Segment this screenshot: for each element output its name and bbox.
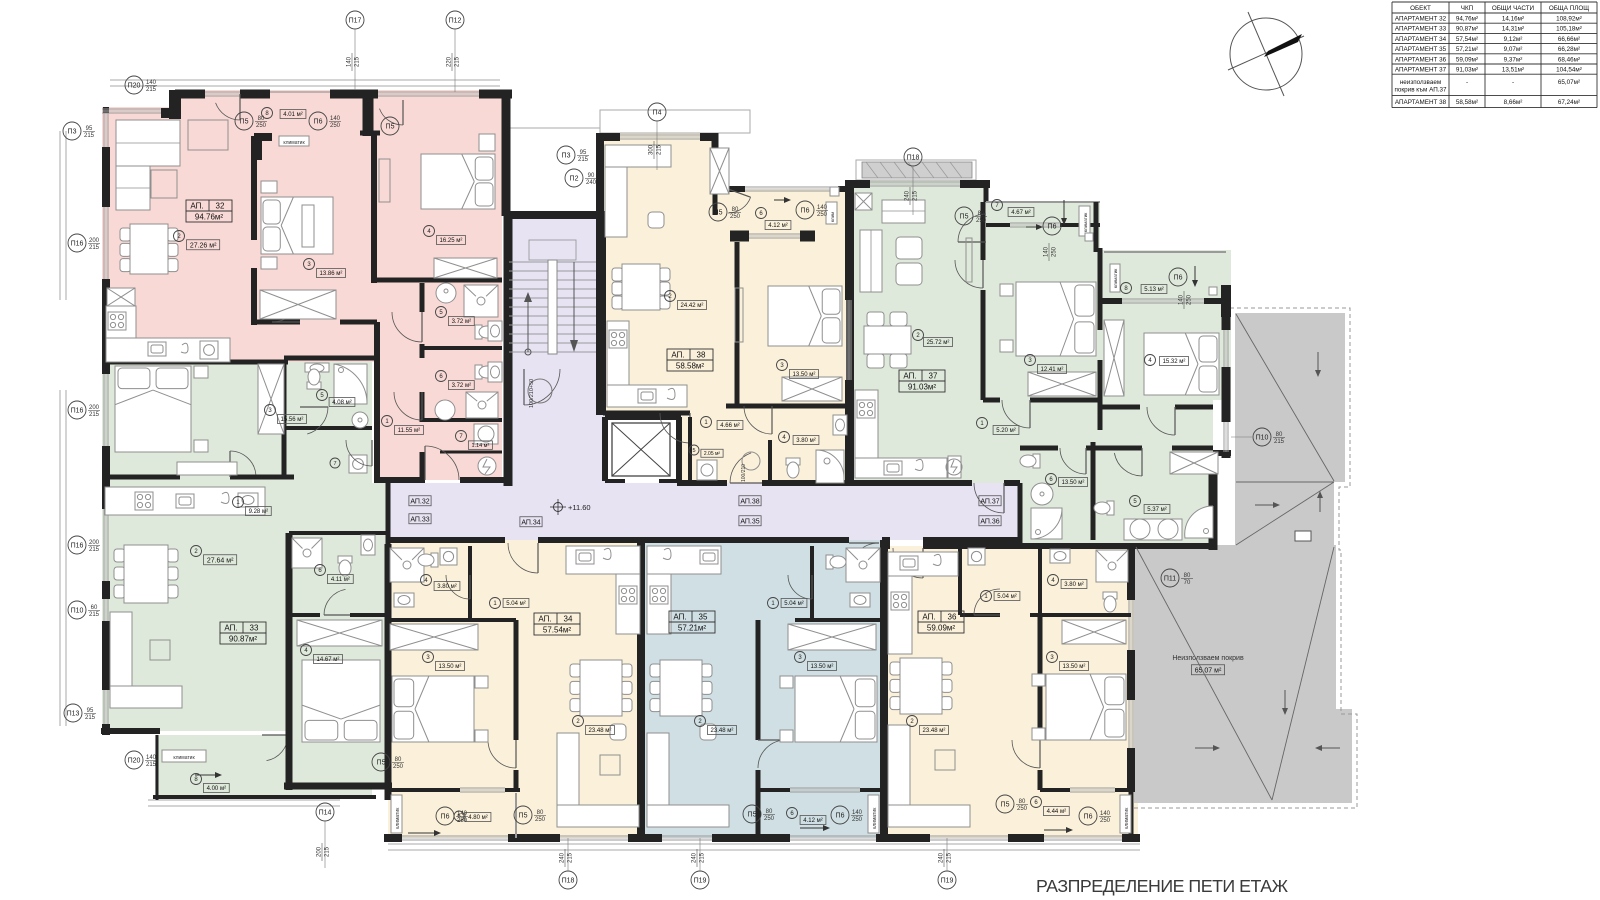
svg-text:АПАРТАМЕНТ 33: АПАРТАМЕНТ 33: [1395, 26, 1447, 33]
svg-text:П16: П16: [71, 241, 84, 248]
svg-text:П6: П6: [441, 814, 450, 821]
svg-text:33: 33: [250, 624, 259, 633]
svg-text:ОБЕКТ: ОБЕКТ: [1410, 5, 1431, 12]
svg-text:АП.37: АП.37: [980, 498, 999, 505]
svg-text:П6: П6: [1174, 275, 1183, 282]
svg-text:АП.: АП.: [903, 372, 916, 381]
svg-text:2.05 м²: 2.05 м²: [704, 451, 721, 457]
svg-text:27.64 м²: 27.64 м²: [207, 557, 234, 564]
svg-text:5.04 м²: 5.04 м²: [997, 594, 1016, 600]
svg-text:200: 200: [89, 405, 100, 411]
svg-text:4.12 м²: 4.12 м²: [803, 818, 822, 824]
svg-text:3.80 м²: 3.80 м²: [796, 438, 815, 444]
svg-text:4.44 м²: 4.44 м²: [1047, 809, 1066, 815]
svg-text:климатик: климатик: [283, 140, 305, 146]
svg-text:215: 215: [568, 852, 574, 863]
svg-text:140: 140: [146, 80, 157, 86]
svg-text:П10: П10: [71, 608, 84, 615]
svg-text:240: 240: [939, 852, 945, 863]
svg-text:П5: П5: [240, 119, 249, 126]
svg-text:П5: П5: [377, 760, 386, 767]
svg-text:12.41 м²: 12.41 м²: [1041, 367, 1064, 373]
svg-text:215: 215: [700, 852, 706, 863]
svg-text:4.11 м²: 4.11 м²: [331, 577, 350, 583]
svg-text:4.08 м²: 4.08 м²: [332, 400, 351, 406]
svg-text:250: 250: [330, 123, 341, 129]
svg-text:140: 140: [146, 755, 157, 761]
svg-text:9,07м²: 9,07м²: [1504, 46, 1523, 53]
svg-text:215: 215: [85, 715, 96, 721]
svg-text:215: 215: [84, 133, 95, 139]
svg-text:65.07 м²: 65.07 м²: [1195, 667, 1222, 674]
svg-text:140: 140: [852, 810, 863, 816]
svg-text:215: 215: [947, 852, 953, 863]
svg-text:3.72 м²: 3.72 м²: [452, 319, 471, 325]
svg-text:14,31м²: 14,31м²: [1502, 26, 1524, 33]
svg-text:13.86 м²: 13.86 м²: [320, 271, 343, 277]
svg-text:П5: П5: [714, 210, 723, 217]
svg-text:9,12м²: 9,12м²: [1504, 36, 1523, 43]
svg-text:8,66м²: 8,66м²: [1504, 99, 1523, 106]
svg-text:57,21м²: 57,21м²: [1456, 46, 1478, 53]
svg-text:климатик: климатик: [1083, 213, 1088, 232]
svg-text:АП.36: АП.36: [980, 518, 999, 525]
svg-text:П6: П6: [836, 813, 845, 820]
svg-text:климатик: климатик: [1124, 807, 1130, 829]
svg-text:13.50 м²: 13.50 м²: [439, 664, 462, 670]
svg-text:35: 35: [699, 613, 708, 622]
svg-text:14,16м²: 14,16м²: [1502, 16, 1524, 23]
svg-text:АП.: АП.: [190, 202, 203, 211]
svg-text:неизползваем: неизползваем: [1400, 79, 1441, 86]
svg-text:240: 240: [560, 852, 566, 863]
svg-text:250: 250: [1187, 294, 1193, 305]
svg-text:23.48 м²: 23.48 м²: [589, 728, 612, 734]
svg-text:14.67 м²: 14.67 м²: [317, 657, 340, 663]
svg-text:250: 250: [256, 123, 267, 129]
svg-text:5: 5: [692, 448, 695, 454]
svg-text:80: 80: [1276, 432, 1283, 438]
svg-text:215: 215: [146, 87, 157, 93]
svg-text:250: 250: [817, 212, 828, 218]
svg-text:АПАРТАМЕНТ 32: АПАРТАМЕНТ 32: [1395, 16, 1447, 23]
svg-text:АП.35: АП.35: [740, 518, 759, 525]
svg-text:ОБЩИ ЧАСТИ: ОБЩИ ЧАСТИ: [1492, 5, 1535, 12]
svg-text:9,37м²: 9,37м²: [1504, 56, 1523, 63]
svg-text:95: 95: [87, 708, 94, 714]
svg-text:П3: П3: [68, 129, 77, 136]
svg-text:80: 80: [395, 757, 402, 763]
svg-text:5.13 м²: 5.13 м²: [1144, 287, 1163, 293]
svg-text:АП.: АП.: [538, 615, 551, 624]
svg-text:59,09м²: 59,09м²: [1456, 56, 1478, 63]
svg-text:80: 80: [258, 116, 265, 122]
svg-text:АП.34: АП.34: [521, 519, 540, 526]
svg-text:140: 140: [1179, 294, 1185, 305]
svg-text:АП.: АП.: [224, 624, 237, 633]
svg-text:95: 95: [580, 150, 587, 156]
svg-text:94,76м²: 94,76м²: [1456, 16, 1478, 23]
svg-text:13.50 м²: 13.50 м²: [1062, 480, 1085, 486]
svg-text:11.55 м²: 11.55 м²: [398, 428, 420, 434]
svg-text:П5: П5: [748, 812, 757, 819]
svg-text:95: 95: [86, 126, 93, 132]
svg-text:215: 215: [89, 612, 100, 618]
svg-text:200: 200: [89, 540, 100, 546]
svg-text:15.32 м²: 15.32 м²: [1163, 359, 1186, 365]
svg-text:П18: П18: [907, 155, 920, 162]
svg-text:200: 200: [317, 846, 323, 857]
svg-text:климатик: климатик: [1113, 269, 1118, 288]
svg-text:9.28 м²: 9.28 м²: [249, 509, 268, 515]
svg-text:215: 215: [455, 56, 461, 67]
svg-text:АП.: АП.: [673, 613, 686, 622]
svg-text:П13: П13: [67, 711, 80, 718]
svg-text:215: 215: [913, 190, 919, 201]
svg-text:клим: клим: [830, 212, 835, 222]
svg-text:240: 240: [905, 190, 911, 201]
svg-text:П14: П14: [319, 810, 332, 817]
svg-text:Неизползваем покрив: Неизползваем покрив: [1172, 655, 1244, 662]
svg-text:П16: П16: [71, 408, 84, 415]
svg-text:АПАРТАМЕНТ 34: АПАРТАМЕНТ 34: [1395, 36, 1447, 43]
svg-text:П2: П2: [570, 176, 579, 183]
svg-text:27.26 м²: 27.26 м²: [190, 242, 217, 249]
svg-text:70: 70: [1184, 580, 1191, 586]
svg-text:250: 250: [1100, 818, 1111, 824]
svg-text:5.04 м²: 5.04 м²: [784, 601, 803, 607]
svg-text:П5: П5: [386, 124, 395, 131]
svg-text:13.50 м²: 13.50 м²: [793, 372, 816, 378]
svg-text:91.03м²: 91.03м²: [908, 383, 937, 392]
svg-text:140: 140: [330, 116, 341, 122]
svg-text:П5: П5: [960, 214, 969, 221]
svg-text:200: 200: [89, 238, 100, 244]
svg-text:250: 250: [393, 764, 404, 770]
svg-text:215: 215: [1274, 439, 1285, 445]
svg-text:57.54м²: 57.54м²: [543, 626, 572, 635]
svg-text:-: -: [1512, 79, 1514, 86]
svg-text:П17: П17: [349, 18, 362, 25]
svg-text:13.50 м²: 13.50 м²: [811, 664, 834, 670]
svg-text:АПАРТАМЕНТ 36: АПАРТАМЕНТ 36: [1395, 56, 1447, 63]
svg-text:250: 250: [730, 214, 741, 220]
svg-text:80: 80: [1184, 573, 1191, 579]
svg-text:100/210: 100/210: [741, 464, 747, 482]
svg-text:215: 215: [89, 412, 100, 418]
svg-text:38: 38: [697, 351, 706, 360]
svg-text:климатик: климатик: [173, 755, 195, 761]
svg-text:215: 215: [657, 144, 663, 155]
svg-text:94.76м²: 94.76м²: [195, 213, 224, 222]
svg-text:215: 215: [89, 245, 100, 251]
svg-text:5.37 м²: 5.37 м²: [1147, 507, 1166, 513]
svg-text:АП.33: АП.33: [410, 516, 429, 523]
svg-text:215: 215: [146, 762, 157, 768]
svg-text:36: 36: [948, 613, 957, 622]
svg-text:АП.38: АП.38: [740, 498, 759, 505]
svg-text:250: 250: [1017, 806, 1028, 812]
svg-text:П6: П6: [314, 119, 323, 126]
svg-text:240: 240: [692, 852, 698, 863]
svg-text:АП.: АП.: [922, 613, 935, 622]
svg-text:16.25 м²: 16.25 м²: [440, 238, 463, 244]
svg-text:58,58м²: 58,58м²: [1456, 99, 1478, 106]
svg-text:250: 250: [457, 818, 468, 824]
svg-text:215: 215: [578, 157, 589, 163]
svg-text:59.09м²: 59.09м²: [927, 624, 956, 633]
svg-text:покрив към АП.37: покрив към АП.37: [1395, 86, 1447, 93]
svg-text:90.87м²: 90.87м²: [229, 635, 258, 644]
svg-text:7: 7: [333, 461, 336, 467]
svg-text:140: 140: [347, 56, 353, 67]
svg-text:РАЗПРЕДЕЛЕНИЕ ПЕТИ ЕТАЖ: РАЗПРЕДЕЛЕНИЕ ПЕТИ ЕТАЖ: [1036, 876, 1289, 896]
svg-text:4.66 м²: 4.66 м²: [720, 423, 739, 429]
svg-text:4.01 м²: 4.01 м²: [283, 112, 302, 118]
svg-text:140: 140: [457, 811, 468, 817]
svg-text:климатик: климатик: [395, 807, 401, 829]
svg-text:80: 80: [537, 810, 544, 816]
svg-text:215: 215: [355, 56, 361, 67]
svg-text:90: 90: [588, 173, 595, 179]
svg-text:250: 250: [1052, 246, 1058, 257]
svg-text:66,66м²: 66,66м²: [1558, 36, 1580, 43]
svg-text:250: 250: [852, 817, 863, 823]
svg-text:АПАРТАМЕНТ 35: АПАРТАМЕНТ 35: [1395, 46, 1447, 53]
svg-text:250: 250: [976, 218, 987, 224]
svg-text:П16: П16: [71, 543, 84, 550]
svg-text:32: 32: [216, 202, 225, 211]
svg-text:3.80 м²: 3.80 м²: [1064, 582, 1083, 588]
svg-text:100/210+50: 100/210+50: [529, 379, 535, 408]
svg-text:ОБЩА ПЛОЩ: ОБЩА ПЛОЩ: [1549, 5, 1589, 12]
svg-text:23.48 м²: 23.48 м²: [923, 728, 946, 734]
svg-text:104,54м²: 104,54м²: [1556, 67, 1582, 74]
svg-text:ЧКП: ЧКП: [1461, 5, 1474, 12]
svg-text:13,51м²: 13,51м²: [1502, 67, 1524, 74]
svg-text:140: 140: [1044, 246, 1050, 257]
svg-text:П12: П12: [449, 18, 462, 25]
svg-text:37: 37: [929, 372, 938, 381]
svg-text:65,07м²: 65,07м²: [1558, 79, 1580, 86]
svg-text:4.00 м²: 4.00 м²: [207, 786, 226, 792]
svg-text:П20: П20: [128, 758, 141, 765]
svg-text:4.67 м²: 4.67 м²: [1011, 210, 1030, 216]
svg-text:105,18м²: 105,18м²: [1556, 26, 1582, 33]
svg-text:80: 80: [732, 207, 739, 213]
svg-text:3.72 м²: 3.72 м²: [452, 383, 471, 389]
svg-text:250: 250: [764, 816, 775, 822]
svg-text:250: 250: [535, 817, 546, 823]
svg-text:5.20 м²: 5.20 м²: [996, 428, 1015, 434]
svg-text:13.50 м²: 13.50 м²: [1063, 664, 1086, 670]
svg-text:34: 34: [564, 615, 573, 624]
svg-text:57,54м²: 57,54м²: [1456, 36, 1478, 43]
svg-text:+11.60: +11.60: [568, 503, 591, 512]
svg-text:80: 80: [978, 211, 985, 217]
svg-text:140: 140: [1100, 811, 1111, 817]
svg-text:П5: П5: [519, 813, 528, 820]
svg-text:108,92м²: 108,92м²: [1556, 16, 1582, 23]
svg-text:5.04 м²: 5.04 м²: [506, 601, 525, 607]
svg-text:80: 80: [766, 809, 773, 815]
svg-text:П19: П19: [694, 878, 707, 885]
svg-text:-: -: [1466, 79, 1468, 86]
svg-text:300: 300: [649, 144, 655, 155]
svg-text:П18: П18: [562, 878, 575, 885]
svg-text:П6: П6: [801, 208, 810, 215]
svg-text:АПАРТАМЕНТ 37: АПАРТАМЕНТ 37: [1395, 67, 1447, 74]
svg-text:24.42 м²: 24.42 м²: [681, 303, 704, 309]
svg-text:58.58м²: 58.58м²: [676, 362, 705, 371]
svg-text:90,87м²: 90,87м²: [1456, 26, 1478, 33]
svg-text:П3: П3: [562, 153, 571, 160]
svg-text:220: 220: [447, 56, 453, 67]
svg-text:57.21м²: 57.21м²: [678, 624, 707, 633]
svg-text:66,28м²: 66,28м²: [1558, 46, 1580, 53]
svg-text:60: 60: [91, 605, 98, 611]
svg-text:4.12 м²: 4.12 м²: [768, 223, 787, 229]
svg-text:П6: П6: [1084, 814, 1093, 821]
svg-text:П19: П19: [941, 878, 954, 885]
svg-text:15.56 м²: 15.56 м²: [281, 417, 304, 423]
svg-text:АПАРТАМЕНТ 38: АПАРТАМЕНТ 38: [1395, 99, 1447, 106]
svg-text:АП.: АП.: [671, 351, 684, 360]
svg-text:80: 80: [1019, 799, 1026, 805]
svg-text:68,46м²: 68,46м²: [1558, 56, 1580, 63]
svg-text:23.48 м²: 23.48 м²: [711, 728, 734, 734]
svg-text:АП.32: АП.32: [410, 498, 429, 505]
svg-text:215: 215: [325, 846, 331, 857]
svg-text:П6: П6: [1048, 224, 1057, 231]
svg-text:3.80 м²: 3.80 м²: [437, 584, 456, 590]
svg-text:215: 215: [89, 547, 100, 553]
svg-text:П4: П4: [653, 110, 662, 117]
svg-text:67,24м²: 67,24м²: [1558, 99, 1580, 106]
svg-text:4.80 м²: 4.80 м²: [468, 815, 487, 821]
svg-text:25.72 м²: 25.72 м²: [927, 340, 950, 346]
svg-text:140: 140: [817, 205, 828, 211]
svg-text:1.14 м²: 1.14 м²: [471, 443, 489, 449]
svg-text:П5: П5: [1001, 802, 1010, 809]
svg-text:климатик: климатик: [872, 807, 878, 829]
svg-text:91,03м²: 91,03м²: [1456, 67, 1478, 74]
svg-text:П10: П10: [1256, 435, 1269, 442]
svg-text:П20: П20: [128, 83, 141, 90]
svg-text:П11: П11: [1164, 576, 1176, 583]
svg-text:240: 240: [586, 180, 597, 186]
